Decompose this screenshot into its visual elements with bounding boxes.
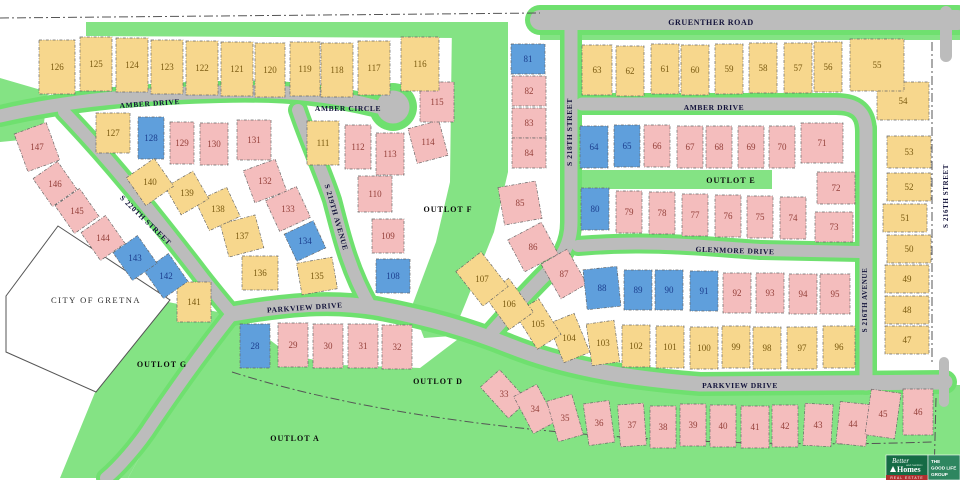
lot-48-number: 48 xyxy=(903,305,913,315)
lot-32-number: 32 xyxy=(393,342,402,352)
lot-144-number: 144 xyxy=(96,233,110,243)
lot-142-number: 142 xyxy=(159,271,173,281)
lot-43-number: 43 xyxy=(814,420,824,430)
lot-127-number: 127 xyxy=(106,128,120,138)
lot-85-number: 85 xyxy=(516,198,526,208)
brand-logo: Better Homes and Gardens REAL ESTATE THE… xyxy=(886,455,960,480)
lot-67-number: 67 xyxy=(686,142,696,152)
lot-64: 64 xyxy=(580,126,608,168)
lot-84: 84 xyxy=(512,138,546,168)
lot-59-number: 59 xyxy=(725,64,735,74)
lot-100: 100 xyxy=(690,327,718,369)
lot-90-number: 90 xyxy=(665,285,675,295)
lot-71-number: 71 xyxy=(818,138,827,148)
lot-145-number: 145 xyxy=(70,206,84,216)
lot-72: 72 xyxy=(817,172,855,204)
lot-123: 123 xyxy=(151,40,183,94)
lot-105-number: 105 xyxy=(531,319,545,329)
lot-66: 66 xyxy=(644,125,670,167)
lot-74-number: 74 xyxy=(789,213,799,223)
lot-113-number: 113 xyxy=(383,149,397,159)
lot-63-number: 63 xyxy=(593,65,603,75)
lot-103-number: 103 xyxy=(596,338,610,348)
label-outlot-e: OUTLOT E xyxy=(706,176,755,185)
lot-118: 118 xyxy=(321,43,353,97)
lot-90: 90 xyxy=(655,270,683,310)
lot-120-number: 120 xyxy=(263,65,277,75)
lot-83: 83 xyxy=(512,108,546,138)
lot-136: 136 xyxy=(242,256,278,290)
lot-79: 79 xyxy=(616,191,642,233)
lot-120: 120 xyxy=(255,43,285,97)
lot-51-number: 51 xyxy=(901,213,910,223)
lot-115-number: 115 xyxy=(430,97,444,107)
lot-60: 60 xyxy=(681,45,709,95)
lot-50: 50 xyxy=(887,235,931,263)
lot-53: 53 xyxy=(887,136,931,168)
lot-37-number: 37 xyxy=(628,420,638,430)
lot-101: 101 xyxy=(656,326,684,368)
lot-60-number: 60 xyxy=(691,65,701,75)
lot-43: 43 xyxy=(803,403,833,446)
lot-89: 89 xyxy=(624,270,652,310)
lot-76: 76 xyxy=(715,195,741,237)
amber-circle-bulb xyxy=(377,91,410,124)
lot-139-number: 139 xyxy=(180,188,194,198)
plat-map-page: 2829303132333435363738394041424344454647… xyxy=(0,0,960,480)
lot-141-number: 141 xyxy=(187,297,201,307)
lot-46: 46 xyxy=(903,389,933,435)
lot-103: 103 xyxy=(586,320,620,365)
lot-119-number: 119 xyxy=(298,64,312,74)
lot-33-number: 33 xyxy=(500,389,510,399)
lot-29-number: 29 xyxy=(289,340,299,350)
lot-88: 88 xyxy=(583,266,621,309)
lot-97-number: 97 xyxy=(798,343,808,353)
lot-108-number: 108 xyxy=(386,271,400,281)
lot-78: 78 xyxy=(649,192,675,234)
lot-132-number: 132 xyxy=(258,176,272,186)
lot-126-number: 126 xyxy=(50,62,64,72)
lot-30: 30 xyxy=(313,324,343,368)
lot-77-number: 77 xyxy=(691,210,701,220)
lot-130-number: 130 xyxy=(207,139,221,149)
lot-80-number: 80 xyxy=(591,204,601,214)
lot-123-number: 123 xyxy=(160,62,174,72)
lot-135: 135 xyxy=(296,257,337,295)
lot-100-number: 100 xyxy=(697,343,711,353)
lot-44-number: 44 xyxy=(849,419,859,429)
lot-69-number: 69 xyxy=(747,142,757,152)
logo-tagline3: GROUP xyxy=(931,472,948,477)
lot-124-number: 124 xyxy=(125,60,139,70)
lot-62-number: 62 xyxy=(626,66,635,76)
lot-76-number: 76 xyxy=(724,211,734,221)
lot-125-number: 125 xyxy=(89,59,103,69)
lot-114-number: 114 xyxy=(421,137,435,147)
street-label-s-216th-avenue: S 216TH AVENUE xyxy=(861,268,869,333)
lot-57-number: 57 xyxy=(794,63,804,73)
lot-117: 117 xyxy=(358,41,390,95)
label-outlot-a: OUTLOT A xyxy=(270,434,319,443)
lot-32: 32 xyxy=(382,325,412,369)
lot-70-number: 70 xyxy=(778,142,788,152)
lot-61: 61 xyxy=(651,44,679,94)
street-label-s-218th-street: S 218TH STREET xyxy=(565,98,574,166)
lot-70: 70 xyxy=(769,126,795,168)
lot-134-number: 134 xyxy=(298,236,312,246)
lot-73-number: 73 xyxy=(830,222,840,232)
lot-107-number: 107 xyxy=(475,274,489,284)
street-label-amber-drive-east: AMBER DRIVE xyxy=(684,103,745,112)
lot-66-number: 66 xyxy=(653,141,663,151)
logo-brand-line3: and Gardens xyxy=(906,463,923,467)
lot-131: 131 xyxy=(237,120,271,160)
lot-140-number: 140 xyxy=(143,177,157,187)
lot-95: 95 xyxy=(820,274,850,314)
street-label-parkview-drive-east: PARKVIEW DRIVE xyxy=(702,381,778,390)
lot-56-number: 56 xyxy=(824,62,834,72)
lot-63: 63 xyxy=(582,45,612,95)
lot-141: 141 xyxy=(177,282,211,322)
lot-49: 49 xyxy=(885,265,929,293)
lot-131-number: 131 xyxy=(247,135,261,145)
label-outlot-f: OUTLOT F xyxy=(424,205,473,214)
logo-tagline1: THE xyxy=(931,459,940,464)
lot-99-number: 99 xyxy=(732,342,742,352)
lot-75-number: 75 xyxy=(756,212,766,222)
lot-118-number: 118 xyxy=(330,65,344,75)
lot-112: 112 xyxy=(345,125,371,169)
lot-82: 82 xyxy=(512,76,546,106)
lot-117-number: 117 xyxy=(367,63,381,73)
logo-brand-line4: REAL ESTATE xyxy=(890,476,923,480)
lot-129-number: 129 xyxy=(175,138,189,148)
lot-91-number: 91 xyxy=(700,286,709,296)
lot-47-number: 47 xyxy=(903,335,913,345)
lot-121: 121 xyxy=(221,42,253,96)
lot-111-number: 111 xyxy=(317,138,330,148)
lot-96: 96 xyxy=(823,326,855,368)
label-outlot-g: OUTLOT G xyxy=(137,360,187,369)
lot-71: 71 xyxy=(801,123,843,163)
label-city-of-gretna: CITY OF GRETNA xyxy=(51,295,141,305)
lot-54-number: 54 xyxy=(899,96,909,106)
lot-28: 28 xyxy=(240,324,270,368)
lot-94-number: 94 xyxy=(799,289,809,299)
lot-130: 130 xyxy=(200,123,228,165)
lot-31-number: 31 xyxy=(359,341,368,351)
lot-136-number: 136 xyxy=(253,268,267,278)
lot-135-number: 135 xyxy=(310,271,324,281)
lot-109-number: 109 xyxy=(381,231,395,241)
street-label-gruenther-road: GRUENTHER ROAD xyxy=(668,18,754,27)
lot-97: 97 xyxy=(787,327,817,369)
lot-59: 59 xyxy=(715,44,743,94)
lot-55: 55 xyxy=(850,39,904,91)
lot-45: 45 xyxy=(865,389,901,439)
lot-128-number: 128 xyxy=(144,133,158,143)
lot-98: 98 xyxy=(753,327,781,369)
lot-116: 116 xyxy=(401,37,439,91)
lot-38: 38 xyxy=(650,406,676,448)
lot-65-number: 65 xyxy=(623,141,633,151)
lot-92-number: 92 xyxy=(733,288,742,298)
lot-35-number: 35 xyxy=(561,413,571,423)
lot-92: 92 xyxy=(723,273,751,313)
lot-81: 81 xyxy=(511,44,545,74)
lot-78-number: 78 xyxy=(658,208,668,218)
lot-122: 122 xyxy=(186,41,218,95)
lot-73: 73 xyxy=(815,212,853,242)
lot-102: 102 xyxy=(622,325,650,367)
lot-61-number: 61 xyxy=(661,64,670,74)
lot-39: 39 xyxy=(680,404,706,446)
lot-89-number: 89 xyxy=(634,285,644,295)
lot-102-number: 102 xyxy=(629,341,643,351)
lot-95-number: 95 xyxy=(831,289,841,299)
lot-91: 91 xyxy=(690,271,718,311)
lot-62: 62 xyxy=(616,46,644,96)
lot-41: 41 xyxy=(741,406,769,448)
lot-29: 29 xyxy=(278,323,308,367)
lot-31: 31 xyxy=(348,324,378,368)
lot-82-number: 82 xyxy=(525,86,534,96)
logo-tagline2: GOOD LIFE xyxy=(931,466,956,471)
lot-68-number: 68 xyxy=(715,142,725,152)
lot-30-number: 30 xyxy=(324,341,334,351)
lot-40-number: 40 xyxy=(719,421,729,431)
lot-98-number: 98 xyxy=(763,343,773,353)
lot-42: 42 xyxy=(772,405,798,447)
lot-137-number: 137 xyxy=(235,231,249,241)
lot-77: 77 xyxy=(682,194,708,236)
street-label-s-216th-street: S 216TH STREET xyxy=(942,164,950,228)
lot-47: 47 xyxy=(885,326,929,354)
lot-44: 44 xyxy=(836,402,870,447)
lot-85: 85 xyxy=(498,181,542,225)
lot-109: 109 xyxy=(372,219,404,253)
lot-38-number: 38 xyxy=(659,422,669,432)
lot-42-number: 42 xyxy=(781,421,790,431)
lot-121-number: 121 xyxy=(230,64,244,74)
lot-34-number: 34 xyxy=(531,404,541,414)
lot-74: 74 xyxy=(780,197,806,239)
lot-40: 40 xyxy=(710,405,736,447)
lot-51: 51 xyxy=(883,204,927,232)
lot-68: 68 xyxy=(706,126,732,168)
lot-79-number: 79 xyxy=(625,207,635,217)
lot-69: 69 xyxy=(738,126,764,168)
label-outlot-d: OUTLOT D xyxy=(413,377,463,386)
lot-127: 127 xyxy=(96,113,130,153)
lot-108: 108 xyxy=(376,259,410,293)
lot-72-number: 72 xyxy=(832,183,841,193)
lot-133-number: 133 xyxy=(281,204,295,214)
plat-map: 2829303132333435363738394041424344454647… xyxy=(0,0,960,480)
lot-143-number: 143 xyxy=(128,253,142,263)
lot-83-number: 83 xyxy=(525,118,535,128)
lot-53-number: 53 xyxy=(905,147,915,157)
lot-75: 75 xyxy=(747,196,773,238)
lot-147-number: 147 xyxy=(30,142,44,152)
lot-84-number: 84 xyxy=(525,148,535,158)
lot-112-number: 112 xyxy=(351,142,364,152)
lot-57: 57 xyxy=(784,43,812,93)
lot-52: 52 xyxy=(887,173,931,201)
lot-93-number: 93 xyxy=(766,288,776,298)
green-top-strip xyxy=(86,22,458,38)
lot-36-number: 36 xyxy=(595,418,605,428)
lot-125: 125 xyxy=(80,37,112,91)
lot-52-number: 52 xyxy=(905,182,914,192)
lot-65: 65 xyxy=(614,125,640,167)
lot-41-number: 41 xyxy=(751,422,760,432)
lot-86-number: 86 xyxy=(529,242,539,252)
lot-111: 111 xyxy=(307,121,339,165)
lot-122-number: 122 xyxy=(195,63,209,73)
lot-56: 56 xyxy=(814,42,842,92)
lot-129: 129 xyxy=(170,122,194,164)
lot-128: 128 xyxy=(138,117,164,159)
lot-124: 124 xyxy=(116,38,148,92)
lot-49-number: 49 xyxy=(903,274,913,284)
lot-55-number: 55 xyxy=(873,60,883,70)
lot-64-number: 64 xyxy=(590,142,600,152)
lot-81-number: 81 xyxy=(524,54,533,64)
lot-106-number: 106 xyxy=(502,299,516,309)
lot-88-number: 88 xyxy=(598,283,608,293)
lot-101-number: 101 xyxy=(663,342,677,352)
lot-93: 93 xyxy=(756,273,784,313)
lot-58-number: 58 xyxy=(759,63,769,73)
lot-67: 67 xyxy=(677,126,703,168)
lot-138-number: 138 xyxy=(211,204,225,214)
lot-146-number: 146 xyxy=(48,179,62,189)
lot-99: 99 xyxy=(722,326,750,368)
lot-116-number: 116 xyxy=(413,59,427,69)
lot-110: 110 xyxy=(358,176,392,212)
street-label-amber-circle: AMBER CIRCLE xyxy=(315,104,381,113)
lot-96-number: 96 xyxy=(835,342,845,352)
lot-46-number: 46 xyxy=(914,407,924,417)
lot-126: 126 xyxy=(39,40,75,94)
lot-58: 58 xyxy=(749,43,777,93)
lot-39-number: 39 xyxy=(689,420,699,430)
lot-104-number: 104 xyxy=(562,333,576,343)
lot-94: 94 xyxy=(789,274,817,314)
lot-28-number: 28 xyxy=(251,341,261,351)
lot-50-number: 50 xyxy=(905,244,915,254)
lot-80: 80 xyxy=(581,188,609,230)
lot-110-number: 110 xyxy=(368,189,382,199)
lot-45-number: 45 xyxy=(879,409,889,419)
lot-48: 48 xyxy=(885,296,929,324)
lot-113: 113 xyxy=(376,133,404,175)
lot-119: 119 xyxy=(290,42,320,96)
lot-37: 37 xyxy=(618,403,647,447)
lot-87-number: 87 xyxy=(560,269,570,279)
